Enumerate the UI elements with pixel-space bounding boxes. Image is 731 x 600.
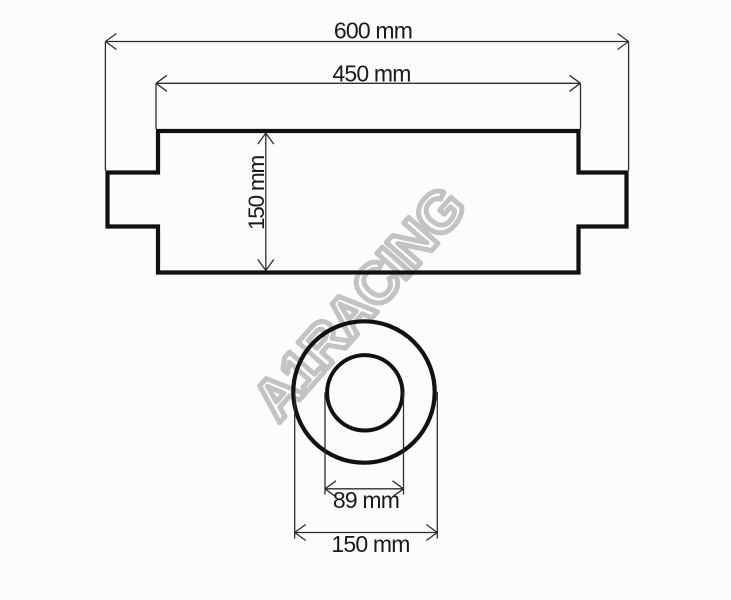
svg-text:450 mm: 450 mm: [332, 61, 410, 87]
svg-text:150 mm: 150 mm: [331, 531, 409, 557]
svg-text:150 mm: 150 mm: [244, 156, 269, 231]
svg-text:600 mm: 600 mm: [334, 18, 412, 44]
svg-text:89 mm: 89 mm: [333, 487, 399, 513]
